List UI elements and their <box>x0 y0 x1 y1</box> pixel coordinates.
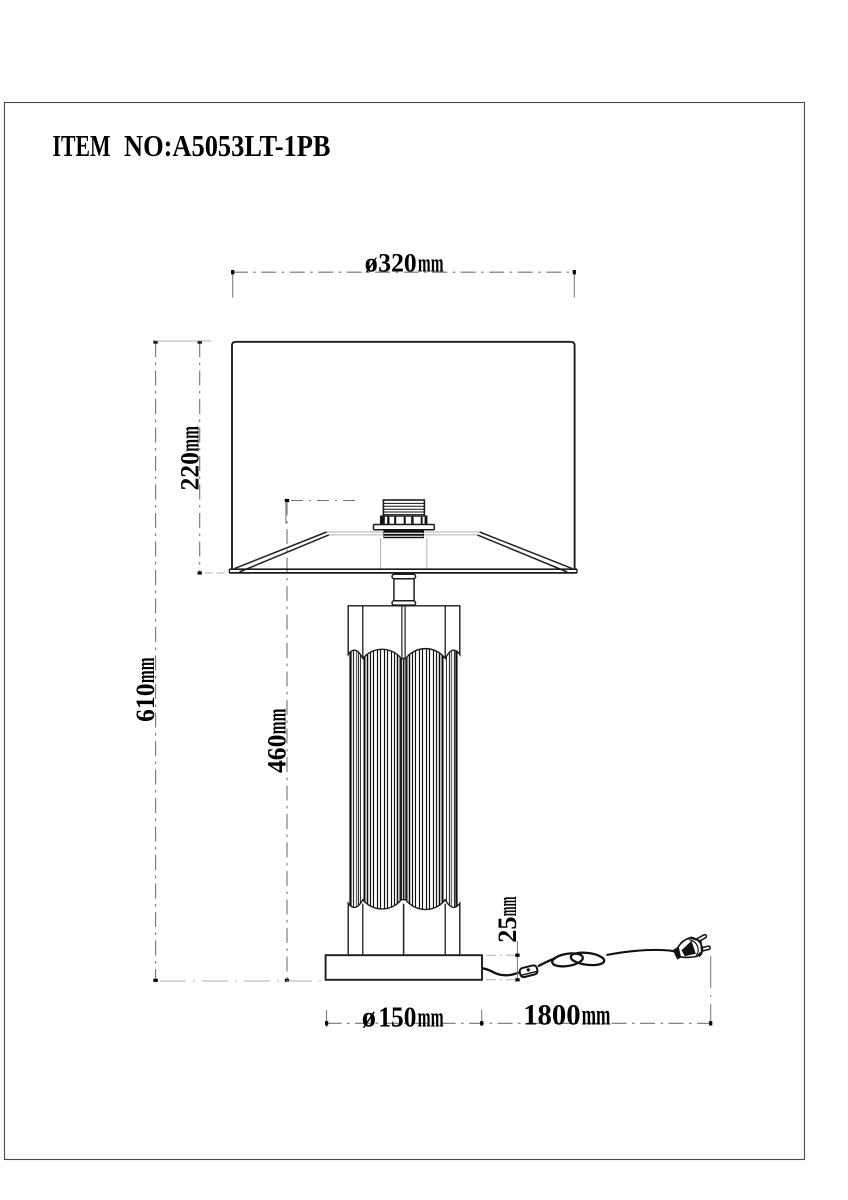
svg-text:mm: mm <box>131 657 160 683</box>
svg-text:mm: mm <box>263 708 292 734</box>
svg-text:1800: 1800 <box>523 999 580 1032</box>
svg-text:NO:A5053LT-1PB: NO:A5053LT-1PB <box>124 128 331 163</box>
svg-text:mm: mm <box>175 426 204 452</box>
svg-text:ITEM: ITEM <box>53 128 111 163</box>
svg-text:460: 460 <box>263 735 292 773</box>
svg-text:ø: ø <box>362 1001 376 1034</box>
svg-text:610: 610 <box>131 684 160 722</box>
svg-text:150: 150 <box>378 1002 416 1034</box>
svg-text:mm: mm <box>582 999 611 1032</box>
svg-text:mm: mm <box>493 896 522 916</box>
svg-text:ø: ø <box>365 247 378 277</box>
svg-text:220: 220 <box>175 452 204 490</box>
svg-text:25: 25 <box>493 917 522 943</box>
svg-text:mm: mm <box>418 1002 444 1034</box>
svg-text:320: 320 <box>378 248 416 277</box>
svg-text:mm: mm <box>418 248 444 277</box>
